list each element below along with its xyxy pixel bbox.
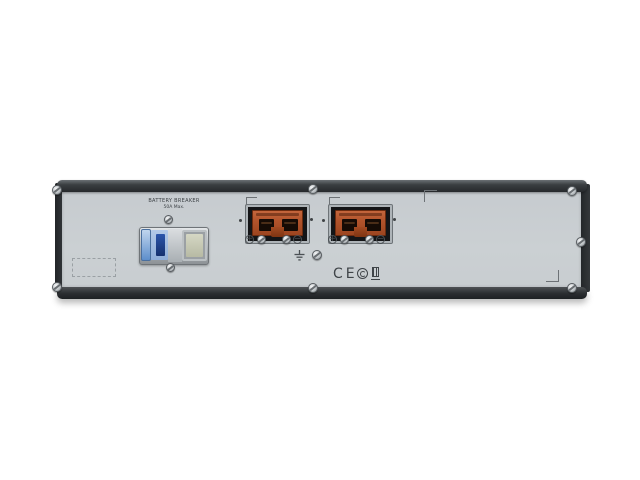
round-conformity-mark-icon bbox=[357, 268, 368, 279]
plus-terminal-icon: + bbox=[245, 235, 254, 244]
screw-icon bbox=[576, 237, 586, 247]
breaker-pad bbox=[186, 234, 203, 257]
alignment-dot bbox=[239, 219, 242, 222]
terminal-screw-icon bbox=[340, 235, 349, 244]
battery-breaker-label-line1: BATTERY BREAKER bbox=[139, 199, 209, 205]
screw-icon bbox=[567, 283, 577, 293]
screw-icon bbox=[567, 186, 577, 196]
breaker-handle bbox=[156, 234, 165, 256]
battery-breaker-switch bbox=[139, 227, 209, 265]
connector-contact bbox=[344, 222, 355, 224]
connector-slot bbox=[365, 219, 381, 231]
battery-connector bbox=[335, 210, 386, 236]
connector-tab bbox=[354, 227, 367, 237]
screw-icon bbox=[308, 184, 318, 194]
battery-breaker-label: BATTERY BREAKER 50A Max. bbox=[139, 199, 209, 210]
ce-mark: CE bbox=[333, 266, 358, 282]
connector-contact bbox=[367, 222, 379, 224]
screw-icon bbox=[164, 215, 173, 224]
alignment-dot bbox=[393, 218, 396, 221]
connector-ridge bbox=[339, 213, 382, 216]
top-rail bbox=[57, 180, 587, 192]
alignment-dot bbox=[310, 218, 313, 221]
terminal-screw-icon bbox=[282, 235, 291, 244]
connector-ridge bbox=[256, 213, 299, 216]
conformity-mark-underline bbox=[371, 279, 380, 280]
screw-icon bbox=[52, 185, 62, 195]
terminal-screw-icon bbox=[365, 235, 374, 244]
minus-terminal-icon: − bbox=[376, 235, 385, 244]
ground-screw-icon bbox=[312, 250, 322, 260]
label-placeholder bbox=[72, 258, 116, 277]
breaker-clip bbox=[141, 229, 151, 261]
ups-battery-rear-panel: BATTERY BREAKER 50A Max. + − bbox=[0, 0, 640, 480]
alignment-dot bbox=[322, 219, 325, 222]
minus-terminal-icon: − bbox=[293, 235, 302, 244]
bottom-rail bbox=[57, 287, 587, 299]
ground-icon bbox=[293, 249, 306, 262]
plus-terminal-icon: + bbox=[328, 235, 337, 244]
corner-bracket-icon bbox=[424, 190, 437, 202]
breaker-body-center bbox=[168, 229, 182, 262]
battery-connector bbox=[252, 210, 303, 236]
connector-tab bbox=[271, 227, 284, 237]
corner-bracket-icon bbox=[546, 270, 559, 282]
connector-contact bbox=[284, 222, 296, 224]
connector-slot bbox=[282, 219, 298, 231]
connector-contact bbox=[261, 222, 272, 224]
square-conformity-mark-icon bbox=[372, 267, 379, 277]
product-photo: BATTERY BREAKER 50A Max. + − bbox=[0, 0, 640, 480]
screw-icon bbox=[52, 282, 62, 292]
screw-icon bbox=[166, 263, 175, 272]
battery-breaker-label-line2: 50A Max. bbox=[139, 205, 209, 210]
screw-icon bbox=[308, 283, 318, 293]
terminal-screw-icon bbox=[257, 235, 266, 244]
